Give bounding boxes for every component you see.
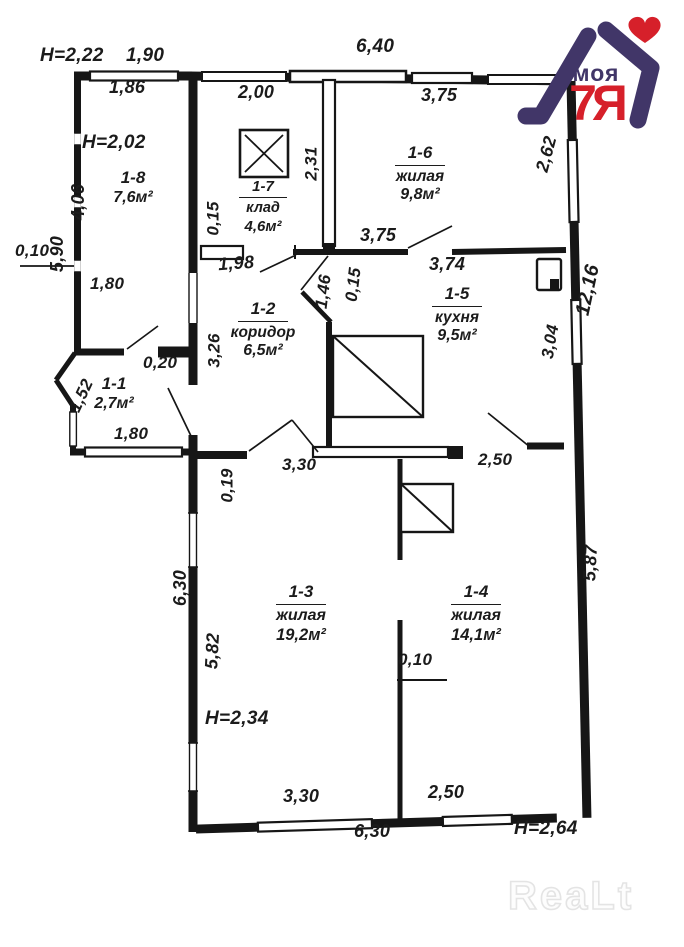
window <box>202 72 286 81</box>
room-area: 14,1м² <box>428 626 524 645</box>
room-number: 1-8 <box>121 168 146 188</box>
watermark-realt: ReaLt <box>508 874 634 919</box>
dim-label: 6,40 <box>356 37 394 56</box>
room-name: коридор <box>215 324 311 342</box>
height-label: Н=2,22 <box>40 46 104 65</box>
dim-label: 2,50 <box>428 783 464 801</box>
dim-label: 1,80 <box>90 275 124 292</box>
room-label-1-2: 1-2 коридор 6,5м² <box>215 299 311 361</box>
room-number: 1-6 <box>395 143 446 166</box>
dim-label: 1,86 <box>109 78 145 96</box>
stove-small-icon <box>401 484 453 532</box>
room-label-1-1: 1-1 2,7м² <box>72 374 156 414</box>
vent-icon <box>240 130 288 177</box>
dim-label: 1,80 <box>114 425 148 442</box>
window <box>568 140 579 222</box>
room-number: 1-4 <box>451 582 502 605</box>
room-area: 9,8м² <box>375 186 465 204</box>
room-area: 6,5м² <box>215 342 311 360</box>
dim-label: 0,10 <box>15 242 49 259</box>
dim-label: 0,19 <box>219 468 236 502</box>
height-label: Н=2,64 <box>514 819 578 838</box>
right-wall <box>567 81 592 818</box>
window <box>290 71 406 82</box>
window <box>85 448 182 457</box>
room-label-1-3: 1-3 жилая 19,2м² <box>253 582 349 645</box>
dim-label: 4,06 <box>69 184 87 220</box>
room-area: 9,5м² <box>412 327 502 345</box>
dim-label: 0,10 <box>398 651 432 668</box>
dim-label: 5,87 <box>580 544 600 581</box>
room-name: жилая <box>375 168 465 186</box>
room-area: 2,7м² <box>72 395 156 413</box>
room-name: кухня <box>412 309 502 327</box>
dim-label: 3,75 <box>421 86 457 104</box>
room-label-1-4: 1-4 жилая 14,1м² <box>428 582 524 645</box>
room-label-1-6: 1-6 жилая 9,8м² <box>375 143 465 205</box>
window <box>70 412 77 446</box>
room-area: 4,6м² <box>218 218 308 235</box>
room-number: 1-3 <box>276 582 327 605</box>
height-label: Н=2,34 <box>205 709 269 728</box>
room-number: 1-2 <box>238 299 289 322</box>
dim-label: 2,31 <box>303 146 320 180</box>
dim-label: 1,90 <box>126 46 164 65</box>
dim-label: 6,30 <box>171 570 189 606</box>
dim-label: 5,90 <box>48 236 66 272</box>
dim-label: 0,20 <box>143 354 177 371</box>
height-label: Н=2,02 <box>82 133 146 152</box>
window <box>412 73 472 83</box>
dim-label: 6,30 <box>354 822 390 840</box>
heart-icon <box>628 17 660 43</box>
room-area: 19,2м² <box>253 626 349 645</box>
room-number: 1-7 <box>239 178 287 198</box>
room-label-1-7: 1-7 клад 4,6м² <box>218 178 308 235</box>
agency-logo: моя 7Я <box>516 8 672 138</box>
boiler-icon <box>537 259 561 290</box>
room-label-1-8: 1-8 7,6м² <box>88 168 178 208</box>
floor-plan-scan: Н=2,22 Н=2,02 Н=2,34 Н=2,64 1,90 1,86 6,… <box>0 0 684 947</box>
dim-label: 3,75 <box>360 226 396 244</box>
room-label-1-5: 1-5 кухня 9,5м² <box>412 284 502 346</box>
dim-label: 2,00 <box>238 83 274 101</box>
window <box>443 815 512 826</box>
logo-brand-main: 7Я <box>546 74 646 132</box>
stove-icon <box>333 336 423 417</box>
room-number: 1-1 <box>102 374 127 394</box>
dim-label: 3,74 <box>429 255 465 273</box>
dim-label: 1,98 <box>217 253 254 273</box>
room-name: жилая <box>428 607 524 625</box>
dim-label: 3,30 <box>282 456 316 473</box>
room-name: жилая <box>253 607 349 625</box>
dim-label: 3,30 <box>283 787 319 805</box>
dim-label: 1,46 <box>313 273 334 309</box>
room-name: клад <box>218 200 308 217</box>
room-number: 1-5 <box>432 284 483 307</box>
dim-label: 0,15 <box>343 266 364 302</box>
dim-label: 5,82 <box>202 632 222 669</box>
dim-label: 2,50 <box>478 451 512 468</box>
room-area: 7,6м² <box>88 189 178 207</box>
